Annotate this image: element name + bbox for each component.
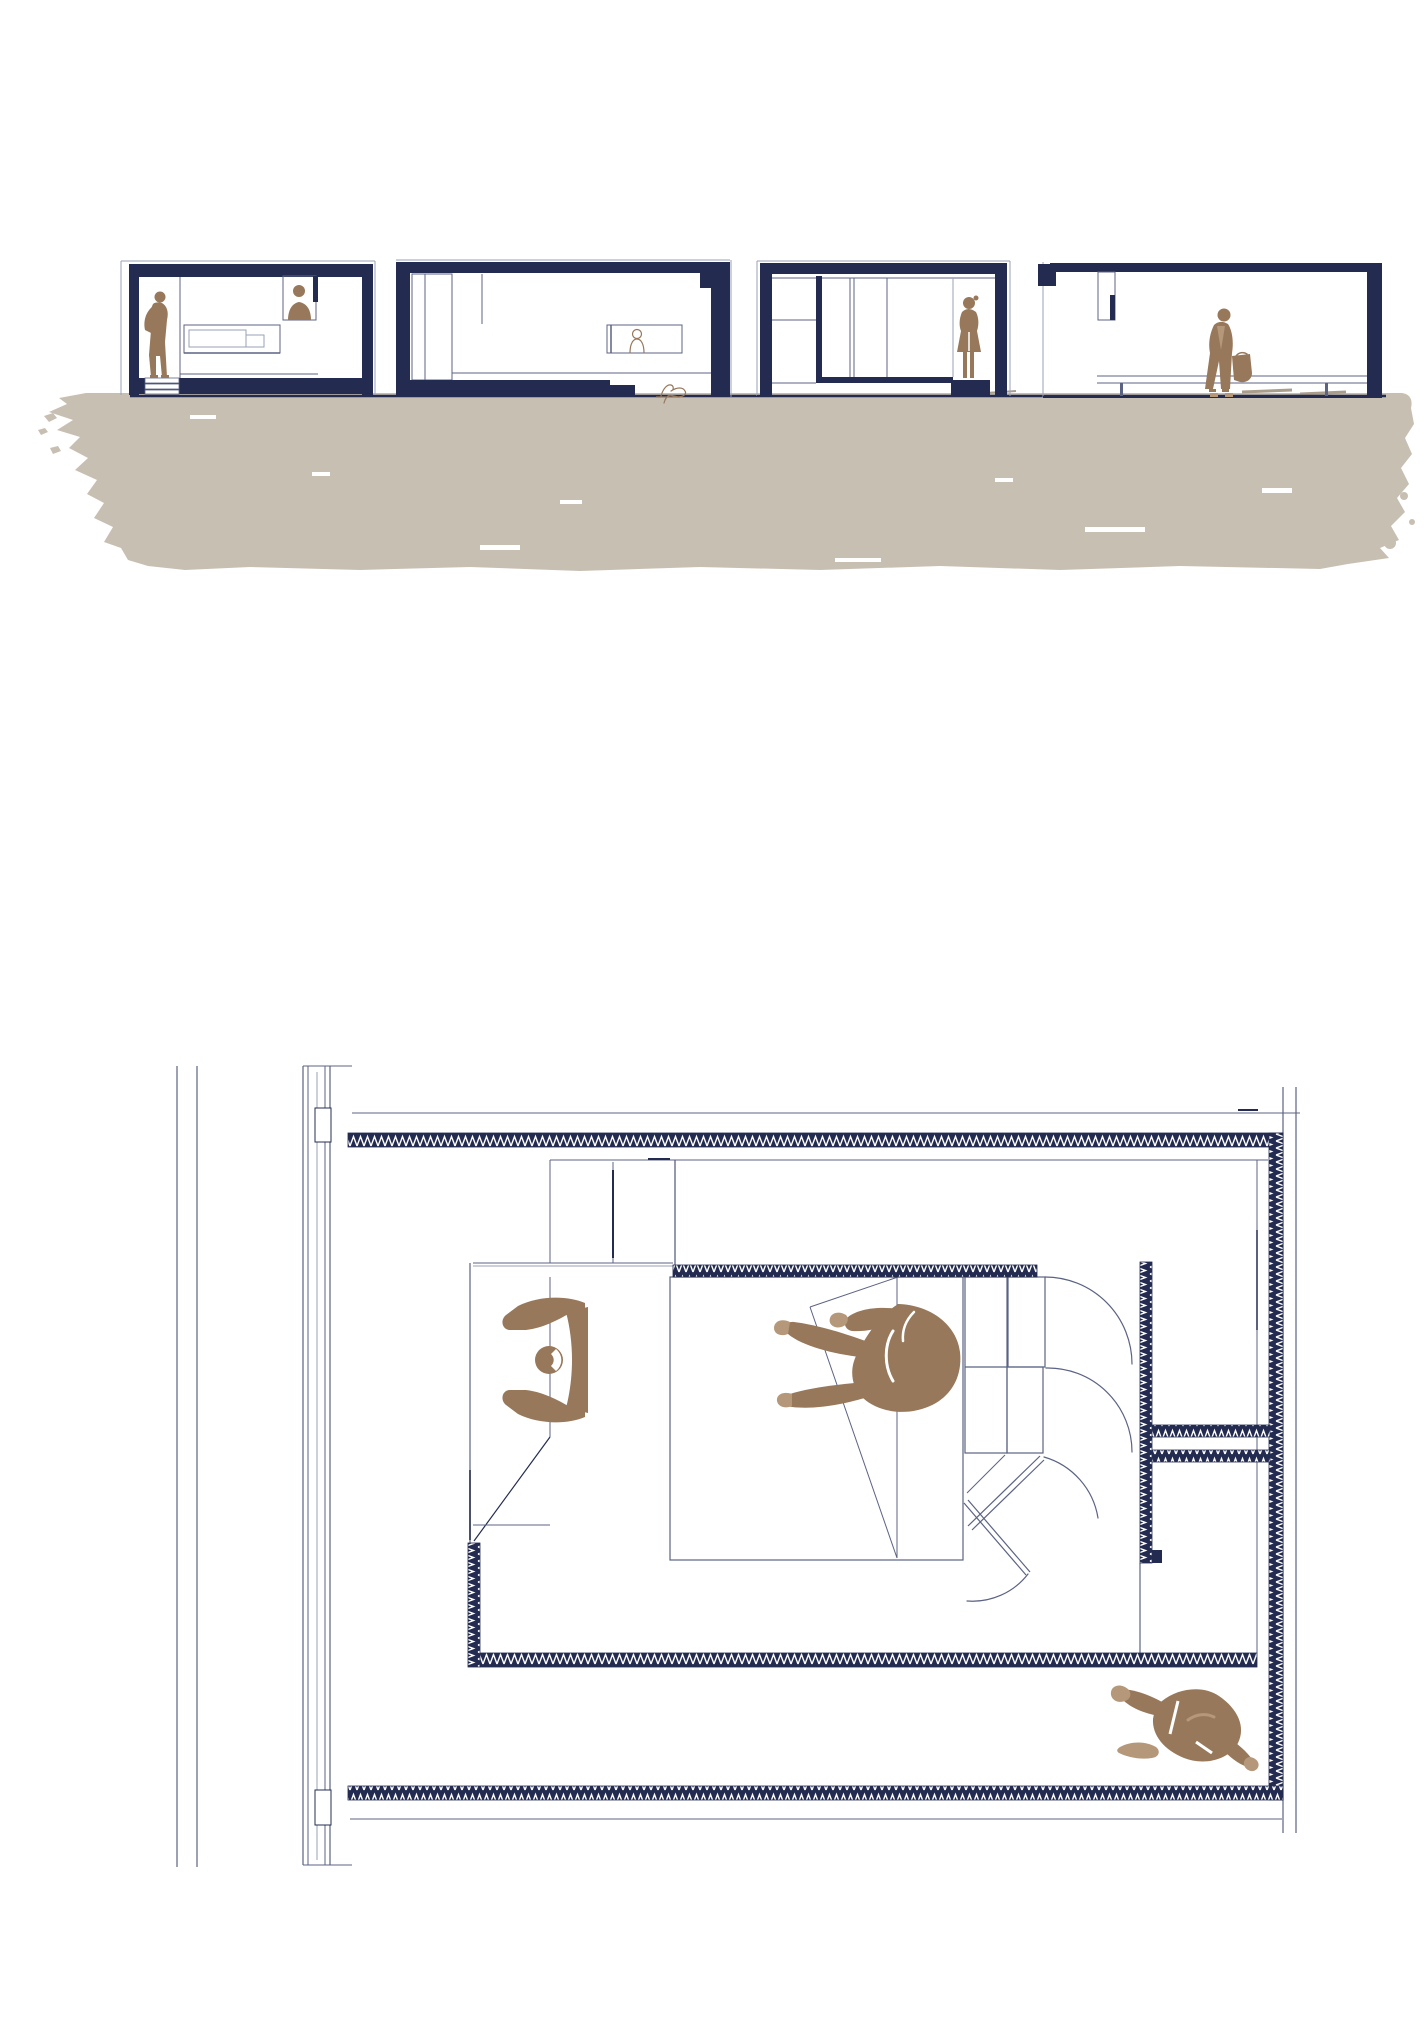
plan-bedroom-wall-hatch-right — [1140, 1262, 1152, 1563]
section2-wall-right-notch — [700, 262, 730, 288]
section1-wall-left — [129, 264, 139, 395]
figure-window-bust-body — [288, 302, 311, 320]
ground-speckle — [312, 472, 330, 476]
plan-door-swing-arc — [967, 1574, 1028, 1601]
figure-niche-sketch-body — [630, 339, 644, 353]
figure-walking-woman-shoe — [1225, 393, 1233, 397]
figure-standing-man-coat — [144, 307, 152, 333]
section1-step — [145, 384, 179, 389]
plan-wall-hatch-right — [1269, 1133, 1283, 1800]
figure-corridor-walker-foot — [1117, 1743, 1159, 1759]
figure-corridor-walker-hand — [1111, 1685, 1130, 1701]
plan-door-swing-arc — [1045, 1277, 1132, 1364]
ground-splatter — [1384, 537, 1396, 549]
figure-lying-person-foot — [774, 1320, 790, 1335]
plan-open-door-leaf — [968, 1500, 1030, 1572]
figure-standing-woman-leg — [970, 352, 974, 378]
section1-sideboard-inner — [189, 330, 246, 347]
section2-plinth — [410, 380, 610, 397]
plan-door-jamb — [315, 1108, 331, 1142]
plan-doorway-stub-hatch — [1152, 1450, 1270, 1462]
figure-lying-person-foot — [777, 1393, 792, 1408]
ground-scribble — [1300, 392, 1346, 394]
figure-walking-woman-foot — [1209, 389, 1216, 392]
architectural-drawing-svg — [0, 0, 1428, 2028]
plan-bed-fold-line — [810, 1277, 898, 1307]
section2-roof-slab — [396, 262, 730, 273]
figure-standing-woman-leg — [963, 352, 967, 378]
plan-open-door-leaf — [968, 1456, 1040, 1526]
plan-bedroom-wall-hatch-bottom — [480, 1653, 1257, 1667]
figure-standing-man-feet — [150, 375, 158, 378]
figure-standing-woman-bun — [974, 296, 979, 301]
section1-sideboard-box — [246, 335, 264, 347]
plan-cabinet — [1008, 1277, 1045, 1367]
section3-roof-slab — [760, 263, 1007, 274]
section3-plinth — [951, 380, 990, 395]
site-ground-band — [49, 393, 1414, 571]
plan-open-door-edge — [967, 1455, 1005, 1493]
section2-door-frame — [412, 274, 425, 380]
ground-speckle — [560, 500, 582, 504]
plan-nightstand — [965, 1277, 1007, 1453]
section1-step — [145, 378, 179, 383]
section4-hanging-panel-core — [1110, 295, 1115, 320]
ground-speckle — [995, 478, 1013, 482]
section1-roof-slab — [129, 264, 372, 277]
drawing-sheet — [0, 0, 1428, 2028]
ground-speckle — [480, 545, 520, 550]
section4-bench-leg — [1120, 383, 1123, 397]
section3-sill — [816, 377, 953, 383]
figure-walking-woman-bag — [1232, 354, 1252, 382]
ground-scribble — [1242, 390, 1292, 392]
ground-splatter — [1400, 492, 1408, 500]
section2-door-leaf — [425, 274, 452, 380]
figure-niche-sketch-head — [633, 330, 642, 339]
section3-wall-left — [760, 263, 772, 396]
figure-walking-woman-foot — [1222, 389, 1229, 392]
plan-wall-hatch-bottom — [348, 1786, 1283, 1800]
figure-walking-woman-shoe — [1210, 393, 1218, 397]
section4-bench-leg — [1325, 383, 1328, 397]
plan-bedroom-wall-hatch-top — [673, 1265, 1037, 1277]
section1-window-jamb — [313, 276, 318, 302]
plan-open-door-leaf — [972, 1460, 1044, 1530]
figure-walking-woman-head — [1218, 309, 1231, 322]
ground-splatter — [1391, 467, 1401, 477]
figure-lying-person-leg — [785, 1382, 868, 1408]
section4-roof-slab — [1050, 263, 1382, 272]
plan-door-jamb — [315, 1790, 331, 1825]
ground-speckle — [835, 558, 881, 562]
section1-sideboard — [184, 325, 280, 353]
section2-niche — [607, 325, 682, 353]
plan-bedroom-wall-hatch-left — [468, 1543, 480, 1667]
ground-splatter — [1409, 519, 1415, 525]
figure-stretching-person-torso — [566, 1307, 588, 1413]
section1-wall-right — [362, 264, 373, 395]
figure-standing-man-head — [155, 292, 166, 303]
figure-window-bust-head — [293, 285, 305, 297]
plan-wall-hatch-top — [348, 1133, 1283, 1147]
ground-splatter — [38, 413, 61, 454]
plan-open-door-leaf — [964, 1503, 1026, 1575]
section1-step — [145, 390, 179, 394]
section3-wall-right — [995, 263, 1007, 396]
plan-door-swing-arc — [1046, 1368, 1132, 1452]
figure-standing-man-feet — [161, 375, 169, 378]
plan-doorway-stub-hatch — [1152, 1425, 1270, 1437]
section3-mullion — [816, 276, 822, 382]
ground-speckle — [1262, 488, 1292, 493]
figure-standing-woman-head — [963, 297, 975, 309]
plan-door-swing-arc — [1044, 1457, 1098, 1518]
section4-wall-right — [1367, 263, 1382, 398]
ground-speckle — [190, 415, 216, 419]
ground-speckle — [1085, 527, 1145, 532]
plan-cabinet — [1007, 1367, 1043, 1453]
section2-wall-left — [396, 262, 410, 397]
figure-corridor-walker-hand — [1244, 1757, 1259, 1771]
